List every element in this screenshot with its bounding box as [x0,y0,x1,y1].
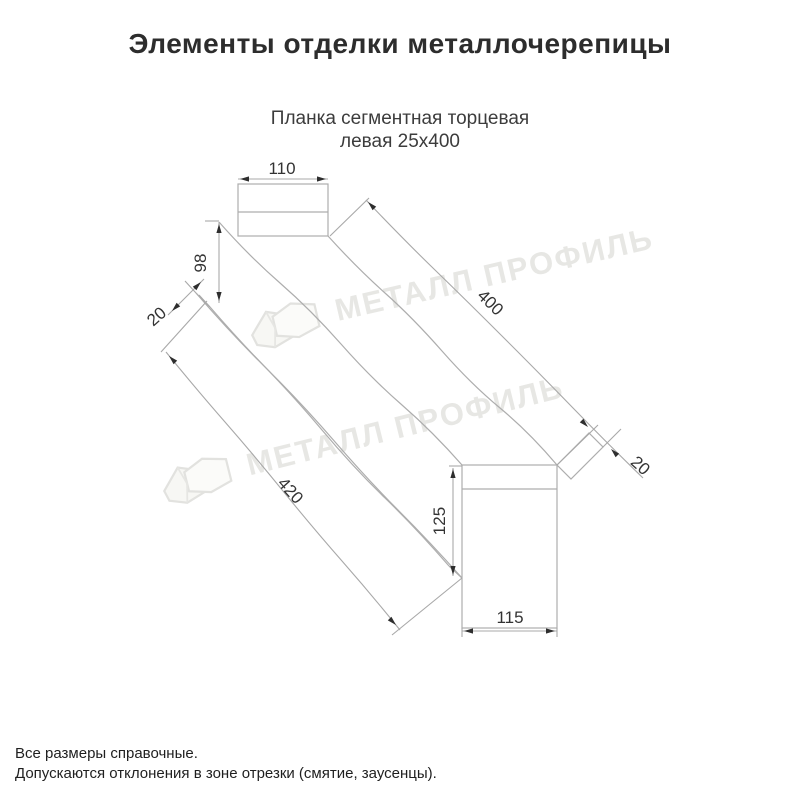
right-hem-flange [557,433,603,479]
footnote-reference-sizes: Все размеры справочные. [15,745,198,762]
far-end-view [238,184,328,236]
dimension-back-height: 98 [191,221,222,303]
near-end-view [462,433,603,628]
dim-20-right-label: 20 [627,452,654,479]
dim-400-label: 400 [474,286,508,319]
dim-420-label: 420 [274,474,307,508]
dim-125-label: 125 [430,507,449,535]
dimension-top-edge-length: 400 20 [330,198,654,479]
strip-body-edges [196,222,557,578]
dim-98-label: 98 [191,254,210,273]
dimension-top-flange-width: 110 [238,159,328,182]
catalog-page: МЕТАЛЛ ПРОФИЛЬ МЕТАЛЛ ПРОФИЛЬ Элементы о… [0,0,800,800]
footnote-tolerances: Допускаются отклонения в зоне отрезки (с… [15,765,437,782]
dim-20-left-label: 20 [143,303,170,330]
dim-115-label: 115 [496,608,523,627]
dimension-left-hem: 20 [143,279,210,330]
dimension-bottom-edge-length: 420 [161,301,462,635]
technical-drawing: 110 98 20 400 20 [0,0,800,800]
dimension-end-face-width: 115 [462,608,557,637]
dim-110-label: 110 [268,159,295,178]
